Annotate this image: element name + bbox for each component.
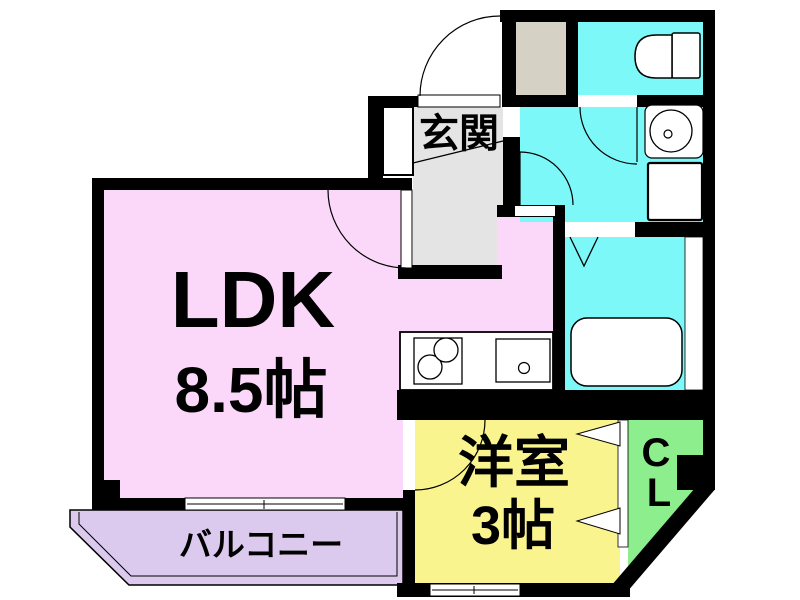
bathroom-pipe-space [685,237,703,390]
western-room-size-label: 3帖 [471,496,555,556]
closet-label-l: L [647,471,671,515]
floorplan-canvas: LDK 8.5帖 玄関 洋室 3帖 バルコニー C L [0,0,800,600]
toilet-bowl [635,35,672,78]
wall-washroom-bath [635,222,703,237]
washing-machine-pan [648,163,702,220]
western-door-opening [403,420,415,490]
wall-kitchen-bath [553,217,565,392]
kitchen-sink [496,339,550,382]
western-room-label: 洋室 [458,431,570,494]
western-room-window [430,584,520,596]
wall-under-shoebox [502,95,578,107]
wall-pillar-ldk [98,480,120,510]
ldk-door-leaf [401,190,412,268]
wall-genkan-topleft [368,96,418,107]
genkan-label: 玄関 [419,112,499,156]
wall-ldk-top [92,178,412,190]
toilet-icon [635,33,700,78]
ldk-balcony-window [185,498,345,510]
kitchen-counter [400,332,553,390]
ldk-size-label: 8.5帖 [175,354,328,426]
wall-shoebox-toilet [566,20,578,107]
wall-genkan-bottom [398,265,502,279]
ldk-label: LDK [171,255,336,344]
washbasin-icon [645,105,703,158]
wall-middle-band [397,390,715,420]
wall-genkan-right [503,137,520,207]
shoe-storage-area [512,22,566,95]
wall-genkan-left [368,96,383,182]
floorplan-svg: LDK 8.5帖 玄関 洋室 3帖 バルコニー C L [0,0,800,600]
stove-burner-right [434,338,458,362]
room-ldk-floor [104,190,403,498]
entrance-door-swing-arc [420,16,500,96]
toilet-door-opening [578,96,637,106]
shoe-cabinet [383,107,413,175]
closet-label-c: C [642,431,671,475]
bathtub-icon [571,318,682,386]
toilet-tank [672,33,700,78]
wall-topblock-left [502,10,516,107]
washbasin-drain [664,130,672,138]
wall-top [500,10,715,22]
entrance-door-leaf [418,95,500,107]
bath-door-opening [565,223,635,236]
washroom-door-opening [515,206,555,216]
sink-drain [519,363,530,374]
wall-ldk-left [92,178,104,510]
balcony-label: バルコニー [179,526,343,563]
